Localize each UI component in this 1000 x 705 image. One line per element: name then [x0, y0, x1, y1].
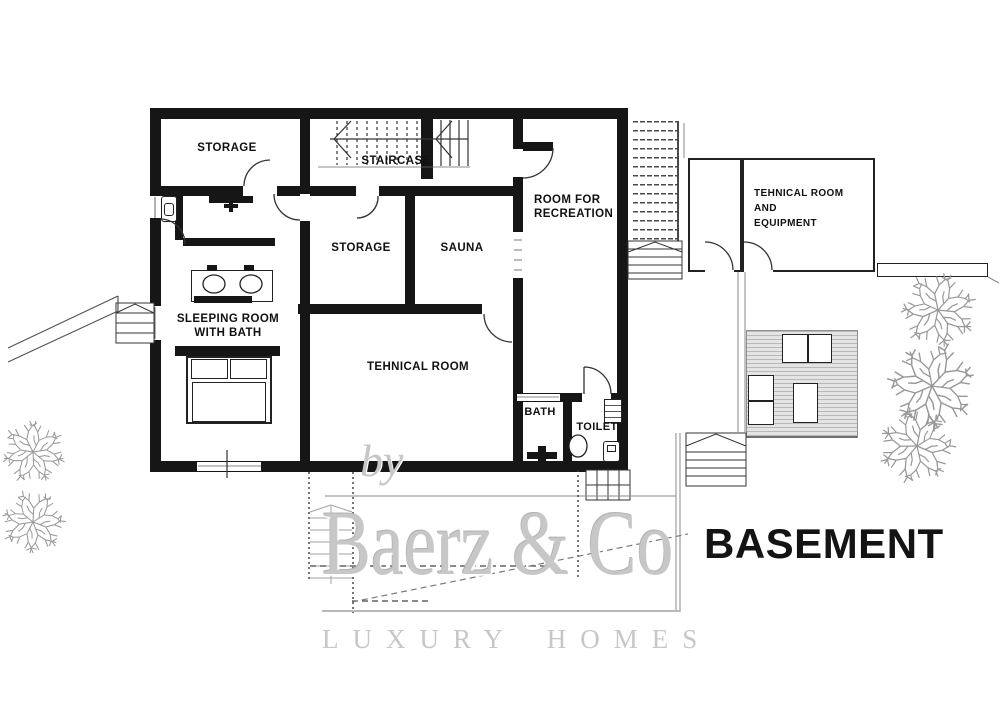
- ramp-path: [8, 296, 118, 362]
- tree-icon: [0, 417, 68, 484]
- plan-title: BASEMENT: [704, 520, 944, 568]
- room-label-storage-b: STORAGE: [331, 242, 390, 256]
- door-arc-technical: [484, 314, 512, 342]
- room-label-storage-a: STORAGE: [197, 142, 256, 156]
- door-arc-storage-a: [244, 160, 270, 186]
- door-arc-sleeping: [274, 194, 300, 220]
- door-arc-toilet: [584, 367, 611, 394]
- linework-layer: [0, 0, 1000, 705]
- stairs-east-exterior: [686, 433, 746, 486]
- stairs-west-entry: [116, 303, 154, 343]
- watermark-tagline: LUXURY HOMES: [322, 624, 692, 655]
- room-label-sleeping: SLEEPING ROOM WITH BATH: [177, 313, 279, 341]
- door-arc-annex-a: [705, 242, 733, 270]
- floor-plan-canvas: STORAGE STAIRCASE STORAGE SAUNA ROOM FOR…: [0, 0, 1000, 705]
- room-label-recreation: ROOM FOR RECREATION: [534, 194, 613, 222]
- room-label-bath: BATH: [524, 406, 555, 419]
- door-arc-annex-b: [744, 242, 772, 270]
- watermark-divider: [322, 610, 680, 612]
- toilet-sink: [569, 435, 587, 457]
- room-label-staircase: STAIRCASE: [361, 155, 430, 169]
- room-label-toilet: TOILET: [576, 421, 617, 434]
- room-label-annex-technical: TEHNICAL ROOM AND EQUIPMENT: [754, 186, 843, 231]
- watermark-brand: Baerz & Co: [322, 500, 674, 587]
- vanity-sink-left: [203, 275, 225, 293]
- vanity-sink-right: [240, 275, 262, 293]
- tree-icon: [0, 476, 81, 568]
- watermark-by: by: [360, 434, 403, 487]
- door-arc-suite: [160, 219, 185, 244]
- door-arc-storage-b: [357, 196, 378, 218]
- door-arc-recreation: [523, 148, 553, 178]
- room-label-sauna: SAUNA: [441, 242, 484, 256]
- stairs-north-exterior: [628, 241, 682, 279]
- room-label-technical: TEHNICAL ROOM: [367, 361, 469, 375]
- tree-icon: [890, 260, 989, 358]
